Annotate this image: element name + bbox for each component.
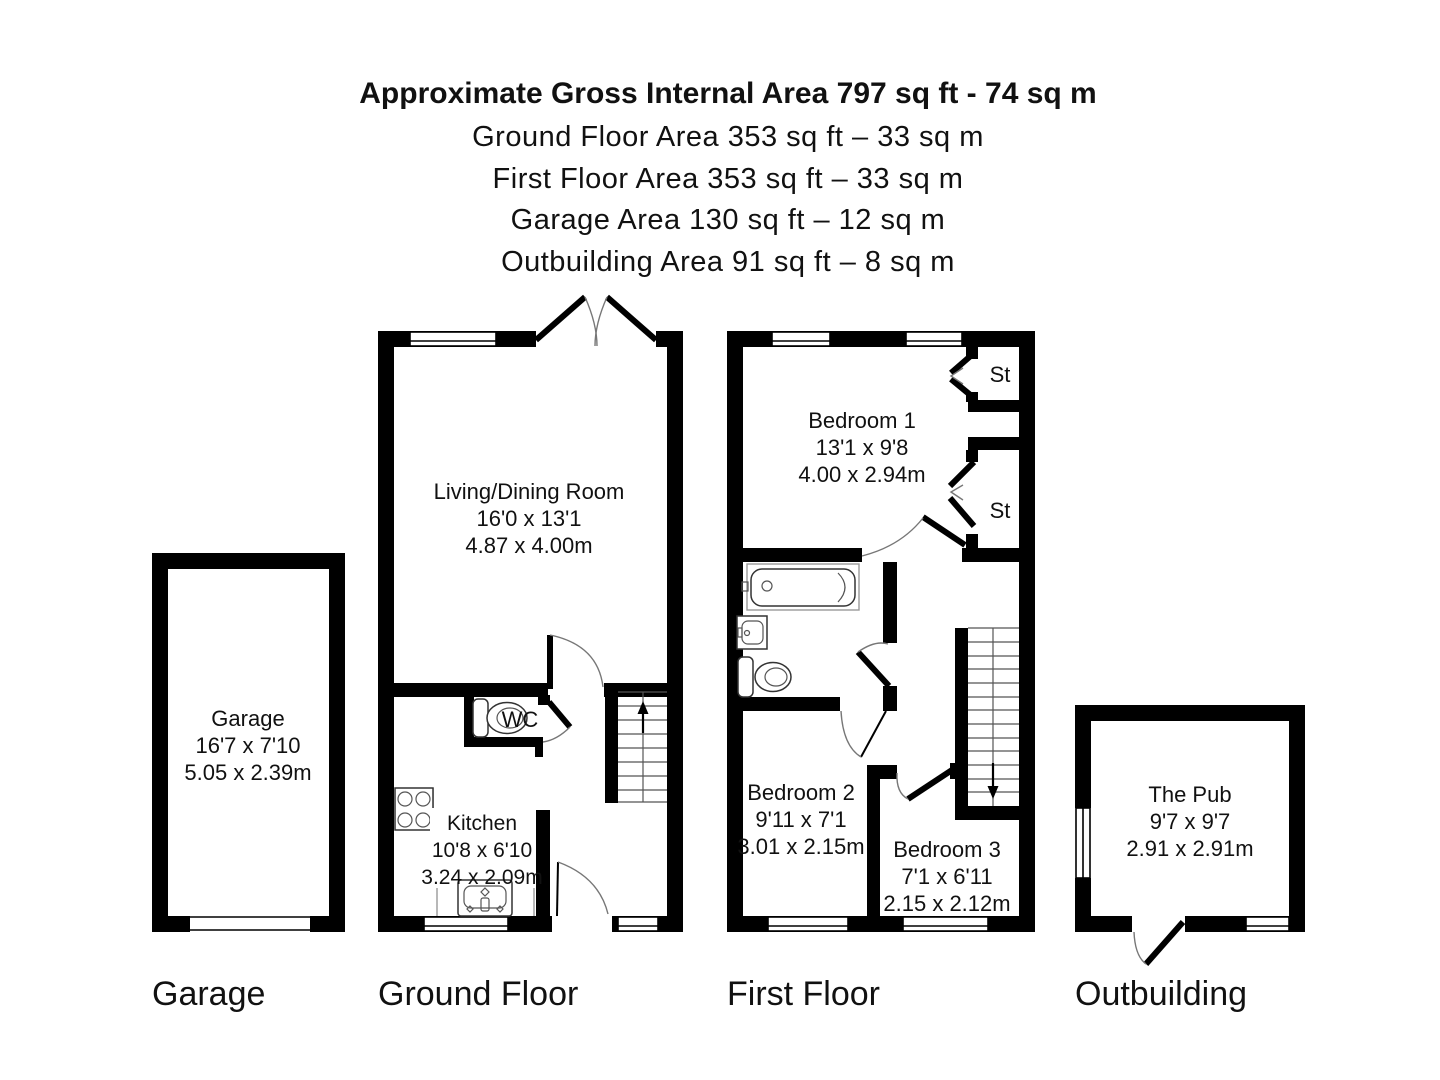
french-doors-icon <box>536 297 656 346</box>
room-dims-m-kitchen: 3.24 x 2.09m <box>421 866 542 889</box>
garage-door <box>190 915 310 933</box>
living-room-door-icon <box>550 635 603 689</box>
outbuilding-room-label: The Pub 9'7 x 9'7 2.91 x 2.91m <box>1126 782 1253 861</box>
stairs-up-arrow-icon <box>638 701 649 714</box>
bathroom-door-icon <box>858 643 889 686</box>
bedroom2-label: Bedroom 2 9'11 x 7'1 3.01 x 2.15m <box>737 780 864 859</box>
wc-door-icon <box>543 702 570 742</box>
ground-floor-plan: WC Kitch <box>378 297 683 933</box>
area-line-first-floor: First Floor Area 353 sq ft – 33 sq m <box>493 163 964 195</box>
bedroom2-door-icon <box>841 711 886 757</box>
floor-label-first-floor: First Floor <box>727 975 880 1013</box>
floorplan-drawing: Approximate Gross Internal Area 797 sq f… <box>0 0 1440 1080</box>
first-floor-plan: Bedroom 1 13'1 x 9'8 4.00 x 2.94m St St … <box>727 331 1035 932</box>
room-name-bedroom2: Bedroom 2 <box>747 780 855 805</box>
room-dims-m-bedroom1: 4.00 x 2.94m <box>798 462 925 487</box>
floorplan-page: Approximate Gross Internal Area 797 sq f… <box>0 0 1440 1080</box>
room-name-bedroom1: Bedroom 1 <box>808 408 916 433</box>
room-dims-ft-living-dining: 16'0 x 13'1 <box>476 506 581 531</box>
closet2-door-icon <box>950 462 974 526</box>
bedroom3-label: Bedroom 3 7'1 x 6'11 2.15 x 2.12m <box>883 837 1010 916</box>
bathtub-icon <box>742 564 859 610</box>
bedroom3-door-icon <box>897 770 952 799</box>
room-name-garage: Garage <box>211 706 284 731</box>
area-line-ground-floor: Ground Floor Area 353 sq ft – 33 sq m <box>472 121 984 153</box>
floor-label-garage: Garage <box>152 975 265 1013</box>
room-dims-m-the-pub: 2.91 x 2.91m <box>1126 836 1253 861</box>
room-dims-m-living-dining: 4.87 x 4.00m <box>465 533 592 558</box>
window-bedroom1-left <box>772 332 830 346</box>
page-title: Approximate Gross Internal Area 797 sq f… <box>359 77 1096 110</box>
header: Approximate Gross Internal Area 797 sq f… <box>359 77 1096 278</box>
wc-room: WC <box>464 695 570 757</box>
closet2-label: St <box>990 498 1011 523</box>
room-dims-m-bedroom3: 2.15 x 2.12m <box>883 891 1010 916</box>
window-bedroom3 <box>903 917 988 931</box>
room-dims-ft-bedroom2: 9'11 x 7'1 <box>755 807 846 832</box>
bathroom-sink-icon <box>737 616 767 649</box>
window-kitchen <box>424 917 508 931</box>
area-line-outbuilding: Outbuilding Area 91 sq ft – 8 sq m <box>501 246 955 278</box>
room-dims-ft-kitchen: 10'8 x 6'10 <box>432 839 532 862</box>
window-bedroom1-right <box>906 332 962 346</box>
room-name-bedroom3: Bedroom 3 <box>893 837 1001 862</box>
floor-label-ground-floor: Ground Floor <box>378 975 578 1013</box>
room-name-kitchen: Kitchen <box>447 812 517 835</box>
closet1-label: St <box>990 362 1011 387</box>
window-outbuilding-left <box>1076 808 1090 878</box>
outbuilding-door-icon <box>1132 915 1185 964</box>
window-living-room <box>410 332 496 346</box>
hob-icon <box>395 788 433 830</box>
bedroom1-door-icon <box>862 517 965 556</box>
room-dims-ft-bedroom3: 7'1 x 6'11 <box>901 864 992 889</box>
room-name-living-dining: Living/Dining Room <box>434 479 625 504</box>
closet1-door-icon <box>951 353 974 398</box>
bedroom1-label: Bedroom 1 13'1 x 9'8 4.00 x 2.94m <box>798 408 925 487</box>
living-dining-label: Living/Dining Room 16'0 x 13'1 4.87 x 4.… <box>434 479 625 558</box>
window-outbuilding-bottom <box>1246 917 1289 931</box>
outbuilding-plan: The Pub 9'7 x 9'7 2.91 x 2.91m <box>1075 705 1305 964</box>
room-dims-ft-the-pub: 9'7 x 9'7 <box>1150 809 1231 834</box>
area-line-garage: Garage Area 130 sq ft – 12 sq m <box>511 204 946 236</box>
front-door-icon <box>552 862 612 933</box>
staircase-up <box>618 692 667 802</box>
floor-label-outbuilding: Outbuilding <box>1075 975 1247 1013</box>
room-name-the-pub: The Pub <box>1148 782 1231 807</box>
garage-plan: Garage 16'7 x 7'10 5.05 x 2.39m <box>152 553 345 933</box>
window-hall <box>618 917 658 931</box>
room-name-wc: WC <box>502 707 539 732</box>
room-dims-m-bedroom2: 3.01 x 2.15m <box>737 834 864 859</box>
garage-room-label: Garage 16'7 x 7'10 5.05 x 2.39m <box>184 706 311 785</box>
window-bedroom2 <box>768 917 848 931</box>
room-dims-ft-bedroom1: 13'1 x 9'8 <box>816 435 909 460</box>
room-dims-ft-garage: 16'7 x 7'10 <box>195 733 300 758</box>
floor-labels: Garage Ground Floor First Floor Outbuild… <box>152 975 1247 1013</box>
room-dims-m-garage: 5.05 x 2.39m <box>184 760 311 785</box>
staircase-down <box>968 628 1019 806</box>
bathroom-toilet-icon <box>738 657 791 697</box>
